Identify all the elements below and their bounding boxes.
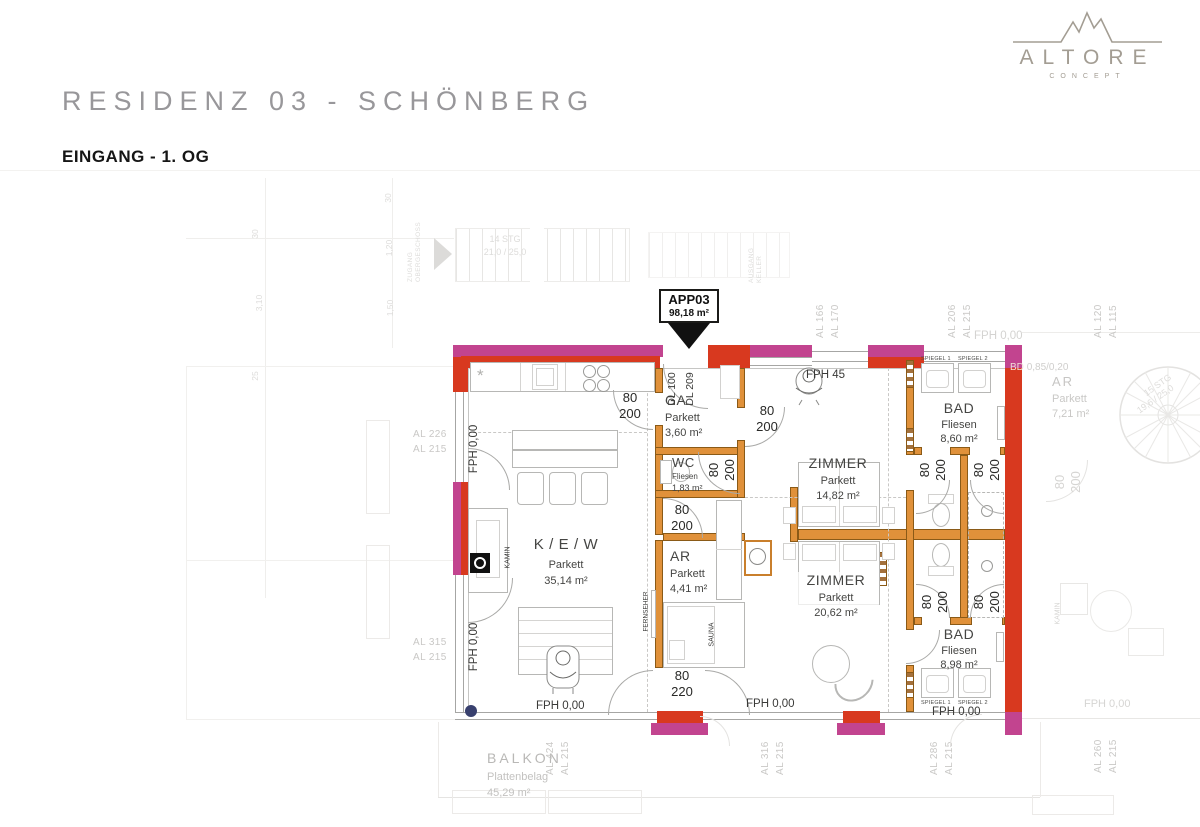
logo-subbrand: CONCEPT (1005, 73, 1170, 80)
dim-label: 30 (383, 184, 393, 212)
wall-tag: AL 206AL 215 (945, 298, 973, 338)
dim-label: 1,20 (384, 230, 394, 266)
room-label-ar: AR Parkett 4,41 m² (670, 548, 707, 595)
wall-tag: AL 260AL 215 (1091, 733, 1119, 773)
neighbor-fph-label: FPH 0,00 (1084, 698, 1130, 710)
sauna-heater-icon (669, 640, 685, 660)
chair (581, 472, 608, 505)
apartment-id: APP03 (661, 292, 717, 308)
dim-label: 1,50 (385, 290, 395, 326)
dim-label: 30 (250, 220, 260, 248)
stair-flight (648, 232, 790, 278)
desk (720, 365, 740, 399)
chair (549, 472, 576, 505)
door-dim-label: 80200 (748, 403, 786, 436)
towel-rail (997, 406, 1005, 440)
door-dim-label: 80200 (664, 502, 700, 535)
floor-plan-page: 14 STG 21,0 / 25,0 ZUGANGOBERGESCHOSS AU… (0, 0, 1200, 827)
door-dim-label: 80200 (971, 585, 999, 619)
towel-rail (996, 632, 1004, 662)
room-label-kew: K / E / W Parkett 35,14 m² (516, 536, 616, 587)
fph-label: FPH 0,00 (932, 706, 981, 718)
room-label-zimmer1: ZIMMER Parkett 14,82 m² (795, 455, 881, 502)
fph-label: FPH 45 (806, 369, 845, 381)
door-dim-label: 80200 (706, 453, 734, 487)
room-label-neighbor-ar: AR Parkett 7,21 m² (1052, 374, 1089, 420)
door-dim-label: 80200 (917, 453, 945, 487)
wall-tag: AL 226AL 215 (413, 427, 447, 457)
zugang-label: ZUGANGOBERGESCHOSS (407, 232, 425, 282)
door-dim-label: 80200 (1052, 465, 1080, 499)
fph-label: FPH 0,00 (974, 330, 1023, 342)
toilet-icon (660, 460, 672, 484)
fph-label: FPH 0,00 (468, 423, 480, 475)
stair-label: 14 STG (480, 234, 530, 244)
wall-tag: AL 166AL 170 (813, 298, 841, 338)
wall-tag: AL 315AL 215 (413, 635, 447, 665)
dim-label: 25 (250, 362, 260, 390)
spiegel-label: SPIEGEL 2 (958, 356, 988, 362)
room-label-bad1: BAD Fliesen 8,60 m² (928, 400, 990, 445)
person-icon (786, 360, 832, 406)
toilet-icon (932, 543, 950, 567)
direction-arrow-icon (434, 238, 452, 270)
door-dim-label: 80200 (919, 585, 947, 619)
fph-label: FPH 0,00 (468, 621, 480, 673)
room-label-zimmer2: ZIMMER Parkett 20,62 m² (793, 572, 879, 619)
apartment-area: 98,18 m² (661, 308, 717, 319)
spiegel-label: SPIEGEL 1 (921, 356, 951, 362)
blue-dot-marker (465, 705, 477, 717)
fernseher-label: FERNSEHER (643, 586, 650, 638)
wall-tag: AL 120AL 115 (1091, 298, 1119, 338)
dim-label: 3,10 (254, 285, 264, 321)
sink-icon: * (477, 366, 484, 386)
chair (517, 472, 544, 505)
logo: ALTORE CONCEPT (1005, 10, 1170, 80)
bd-label: BD 0,85/0,20 (1010, 362, 1068, 373)
shower-head-icon (981, 560, 993, 572)
ausgang-label: AUSGANGKELLER (748, 233, 766, 283)
logo-brand: ALTORE (1005, 46, 1170, 70)
kamin-label: KAMIN (505, 539, 512, 577)
apartment-marker: APP03 98,18 m² (659, 289, 719, 323)
dining-table (512, 430, 618, 450)
page-subtitle: EINGANG - 1. OG (62, 147, 209, 167)
stair-label: 21,0 / 25,0 (478, 247, 532, 257)
page-title: RESIDENZ 03 - SCHÖNBERG (62, 86, 595, 117)
kitchen-counter (470, 362, 655, 392)
mountain-logo-icon (1005, 10, 1170, 46)
person-icon (538, 638, 588, 696)
door-dim-label: 80200 (971, 453, 999, 487)
apartment-arrow-icon (668, 323, 710, 349)
sauna-label: SAUNA (709, 617, 716, 653)
room-label-bad2: BAD Fliesen 8,98 m² (928, 626, 990, 671)
fph-label: FPH 0,00 (536, 700, 585, 712)
entrance-dl-label: DL 100 (666, 366, 678, 412)
door-dim-label: 80200 (608, 390, 652, 423)
wall-tag: AL 424AL 215 (543, 735, 571, 775)
fph-label: FPH 0,00 (746, 698, 795, 710)
washer-icon (749, 548, 766, 565)
room-label-wc: WC Fliesen 1,83 m² (672, 455, 703, 493)
tv-icon (651, 590, 656, 638)
wall-tag: AL 316AL 215 (758, 735, 786, 775)
entrance-dl-label: DL 209 (684, 366, 696, 412)
door-dim-label: 80220 (664, 668, 700, 701)
